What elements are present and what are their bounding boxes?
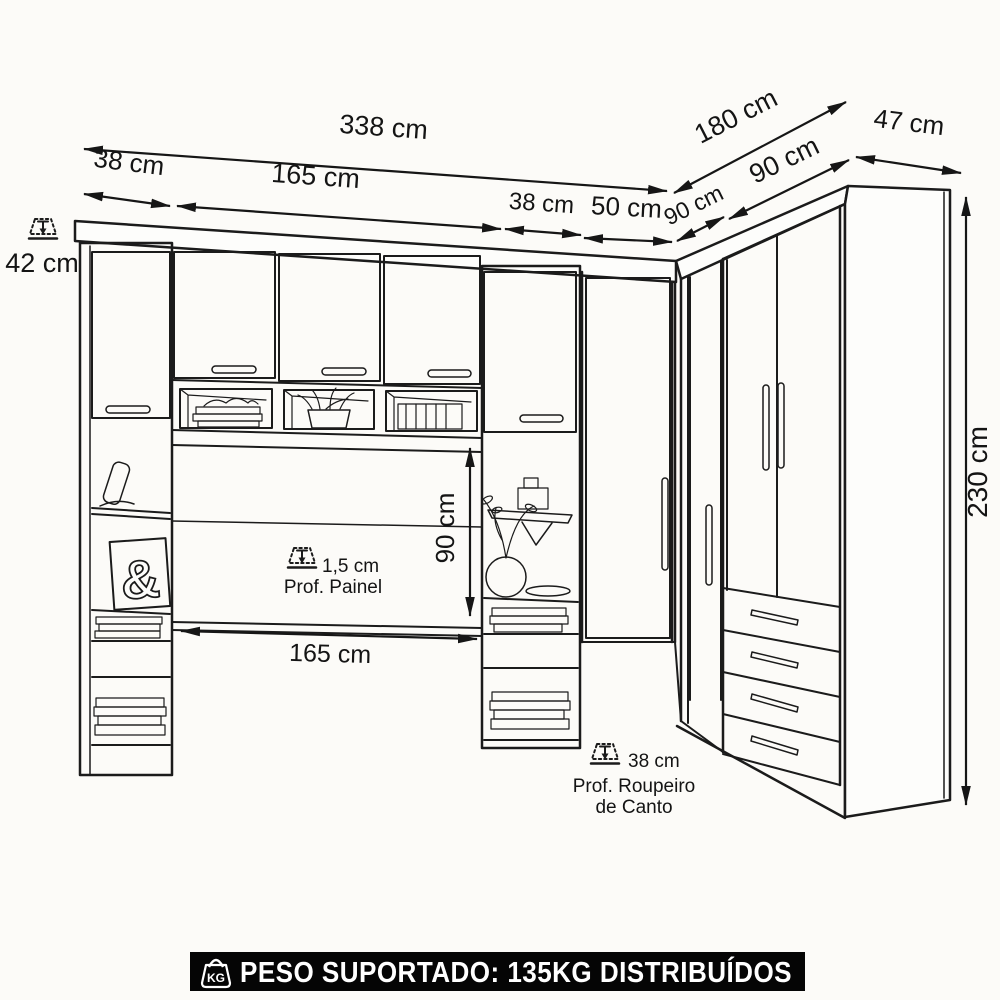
- right-tower-upper-door: [484, 272, 576, 432]
- decor-box: [398, 404, 462, 429]
- decor-books-right-2: [490, 692, 570, 729]
- drawer-bottom: [723, 754, 840, 785]
- dim-under-bridge-label: 90 cm: [430, 493, 460, 564]
- left-tower-upper-door: [92, 252, 170, 418]
- dim-bridge-span-arrow: [177, 206, 501, 229]
- corner-front-door-handle: [662, 478, 668, 570]
- dim-total-width-label: 338 cm: [338, 109, 428, 145]
- right-tower-upper-door-handle: [520, 415, 563, 422]
- left-tower-upper-door-handle: [106, 406, 150, 413]
- kg-weight-icon-text: KG: [207, 971, 225, 985]
- depth-icon-hutch: [29, 219, 57, 239]
- dim-right-run-label: 180 cm: [690, 83, 783, 150]
- right-wardrobe-handle-right: [778, 383, 784, 468]
- bridge-door-2: [279, 254, 380, 381]
- niche-1: [180, 389, 272, 428]
- decor-ampersand-frame: &: [110, 538, 171, 612]
- corner-front-door: [582, 272, 675, 642]
- dim-bridge-inner-label: 165 cm: [289, 639, 372, 669]
- depth-icon-corner: [591, 744, 619, 764]
- right-wardrobe: [677, 204, 845, 818]
- bridge-door-1: [174, 252, 275, 378]
- note-corner-depth-label-2: de Canto: [595, 797, 672, 818]
- note-panel-depth-value: 1,5 cm: [322, 556, 379, 577]
- niche-2: [284, 388, 374, 429]
- decor-books-left-2: [94, 698, 166, 735]
- dim-corner-door-arrow: [584, 238, 672, 242]
- drawer-handle-3: [751, 694, 798, 712]
- decor-books-left-1: [95, 617, 162, 638]
- drawer-stack: [723, 588, 840, 785]
- dim-corner-angle-label: 90 cm: [660, 179, 728, 230]
- dim-corner-door-label: 50 cm: [590, 190, 662, 224]
- niche-3: [386, 391, 477, 431]
- right-tower: [480, 266, 580, 748]
- decor-books-niche-1: [193, 399, 262, 428]
- drawer-top: [723, 588, 840, 607]
- left-tower-shelf: [92, 508, 170, 519]
- dim-right-tower-label: 38 cm: [508, 188, 575, 219]
- corner-wardrobe: [675, 259, 723, 752]
- right-tower-shelf: [484, 598, 578, 602]
- bridge-bottom-band: [172, 430, 482, 452]
- decor-ampersand: &: [119, 549, 162, 612]
- dim-height-label: 230 cm: [962, 426, 993, 518]
- dim-right-wardrobe-label: 90 cm: [744, 130, 823, 189]
- dim-left-tower-label: 38 cm: [92, 143, 166, 181]
- dim-side-depth-arrow: [856, 157, 961, 173]
- side-panel: [845, 186, 950, 817]
- decor-phone: [100, 461, 134, 506]
- note-panel-depth-label: Prof. Painel: [284, 577, 382, 598]
- corner-wardrobe-door-handle: [706, 505, 712, 585]
- dim-total-width-arrow: [84, 149, 667, 191]
- bridge-door-3-handle: [428, 370, 471, 377]
- dim-left-tower-arrow: [84, 194, 170, 206]
- note-corner-depth-value: 38 cm: [628, 751, 680, 772]
- note-corner-depth-label-1: Prof. Roupeiro: [573, 776, 696, 797]
- bridge-door-2-handle: [322, 368, 366, 375]
- footer-label: PESO SUPORTADO: 135KG DISTRIBUÍDOS: [240, 955, 792, 989]
- front-unit: &: [75, 221, 676, 775]
- bridge-door-1-handle: [212, 366, 256, 373]
- drawer-handle-2: [751, 652, 798, 668]
- dim-side-depth-label: 47 cm: [872, 103, 946, 141]
- footer-bar: KG PESO SUPORTADO: 135KG DISTRIBUÍDOS: [190, 952, 805, 991]
- right-wardrobe-handle-left: [763, 385, 769, 470]
- decor-books-right-1: [490, 608, 568, 632]
- left-tower: &: [80, 243, 172, 775]
- product-dimension-diagram: &: [0, 0, 1000, 1000]
- right-run: [675, 186, 950, 818]
- bridge-door-3: [384, 256, 480, 384]
- drawer-handle-4: [751, 736, 798, 755]
- drawer-handle-1: [751, 610, 798, 625]
- dim-right-tower-arrow: [505, 229, 581, 235]
- dim-bridge-span-label: 165 cm: [270, 158, 360, 194]
- dim-hutch-depth-label: 42 cm: [5, 248, 79, 278]
- right-run-floor: [677, 726, 845, 818]
- corner-wardrobe-door: [690, 262, 721, 700]
- decor-plant: [298, 388, 354, 428]
- depth-icon-panel: [288, 548, 316, 568]
